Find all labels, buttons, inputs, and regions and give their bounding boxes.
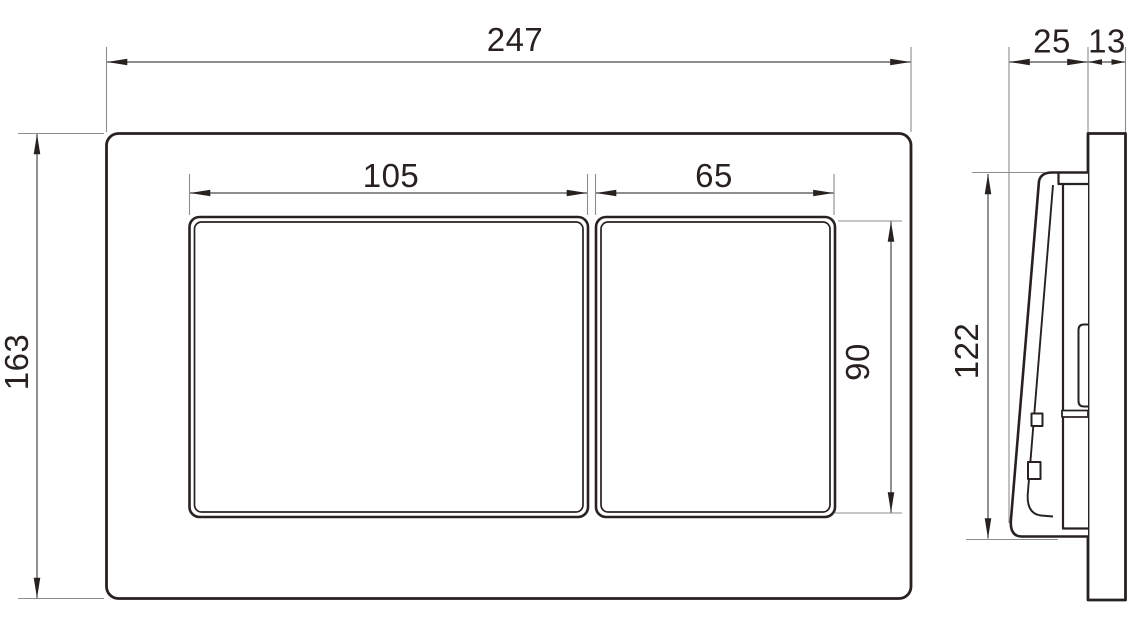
label-right-button-width: 65 [695, 157, 733, 194]
label-overall-height: 163 [0, 334, 35, 391]
side-support-bar [1062, 411, 1088, 418]
side-view: 25 13 122 [948, 23, 1126, 601]
label-left-button-width: 105 [363, 157, 420, 194]
label-button-depth: 25 [1033, 23, 1071, 60]
side-outline [1011, 134, 1126, 601]
label-button-height: 90 [839, 343, 876, 381]
technical-drawing-canvas: 247 163 105 65 90 [0, 0, 1136, 621]
side-clip-lower [1028, 462, 1041, 479]
side-wall-frame [1088, 134, 1126, 601]
side-housing [1079, 325, 1089, 407]
label-side-button-height: 122 [948, 323, 985, 380]
side-clip-upper [1032, 414, 1043, 427]
front-outline [107, 134, 912, 599]
label-overall-width: 247 [487, 21, 544, 58]
button-left-inner [195, 222, 584, 512]
front-view: 247 163 105 65 90 [0, 21, 911, 599]
button-right-inner [601, 222, 830, 512]
drawing-svg: 247 163 105 65 90 [0, 0, 1136, 621]
label-frame-depth: 13 [1088, 23, 1126, 60]
